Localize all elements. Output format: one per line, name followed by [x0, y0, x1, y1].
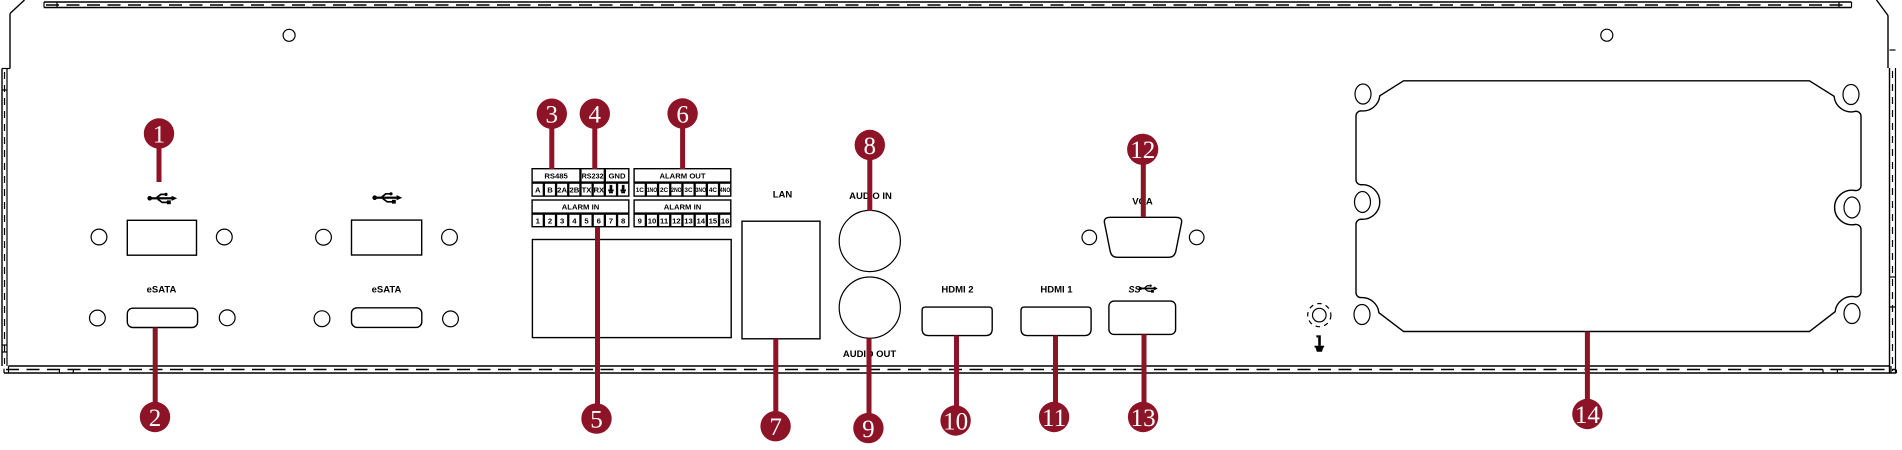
svg-text:2: 2: [548, 216, 552, 225]
svg-text:GND: GND: [608, 172, 626, 181]
svg-text:9: 9: [638, 216, 642, 225]
svg-text:7: 7: [769, 414, 782, 441]
svg-text:2NO: 2NO: [671, 187, 682, 194]
svg-text:A: A: [535, 186, 541, 195]
svg-text:16: 16: [721, 216, 730, 225]
svg-text:1C: 1C: [636, 187, 645, 194]
svg-text:11: 11: [1042, 405, 1066, 432]
svg-text:4: 4: [589, 102, 602, 129]
svg-text:5: 5: [590, 406, 603, 433]
svg-text:8: 8: [621, 216, 626, 225]
svg-text:2A: 2A: [557, 186, 567, 195]
svg-text:7: 7: [609, 216, 613, 225]
svg-text:eSATA: eSATA: [147, 285, 177, 296]
svg-text:2: 2: [149, 405, 162, 432]
svg-text:B: B: [547, 186, 553, 195]
svg-text:3C: 3C: [684, 187, 693, 194]
svg-text:11: 11: [660, 216, 669, 225]
svg-text:1: 1: [153, 121, 166, 148]
svg-text:9: 9: [862, 416, 875, 443]
svg-text:HDMI 2: HDMI 2: [941, 285, 973, 296]
svg-text:4NO: 4NO: [720, 187, 731, 194]
svg-text:3: 3: [560, 216, 564, 225]
svg-text:RS485: RS485: [544, 172, 568, 181]
svg-text:TX: TX: [582, 186, 593, 195]
svg-text:2B: 2B: [569, 186, 579, 195]
svg-text:RS232: RS232: [582, 172, 604, 181]
svg-text:1NO: 1NO: [647, 187, 658, 194]
svg-text:4: 4: [572, 216, 577, 225]
svg-text:15: 15: [709, 216, 718, 225]
svg-text:6: 6: [597, 216, 601, 225]
svg-text:5: 5: [584, 216, 589, 225]
svg-text:eSATA: eSATA: [372, 285, 402, 296]
svg-text:SS: SS: [1129, 285, 1141, 295]
svg-text:10: 10: [648, 216, 657, 225]
svg-text:14: 14: [697, 216, 706, 225]
svg-text:2C: 2C: [660, 187, 669, 194]
svg-text:10: 10: [943, 408, 968, 435]
svg-text:HDMI 1: HDMI 1: [1040, 285, 1073, 296]
svg-text:12: 12: [1130, 137, 1155, 164]
svg-text:13: 13: [1131, 405, 1156, 432]
svg-text:12: 12: [672, 216, 681, 225]
svg-text:3: 3: [546, 102, 559, 129]
svg-text:4C: 4C: [709, 187, 718, 194]
svg-text:ALARM IN: ALARM IN: [664, 202, 702, 211]
svg-text:ALARM IN: ALARM IN: [562, 202, 600, 211]
svg-text:RX: RX: [593, 186, 605, 195]
svg-text:1: 1: [536, 216, 541, 225]
svg-text:ALARM OUT: ALARM OUT: [659, 172, 705, 181]
svg-text:3NO: 3NO: [696, 187, 707, 194]
svg-text:8: 8: [864, 133, 877, 160]
svg-text:13: 13: [684, 216, 693, 225]
svg-text:LAN: LAN: [773, 190, 793, 201]
svg-text:6: 6: [676, 101, 689, 128]
svg-text:14: 14: [1575, 402, 1601, 429]
